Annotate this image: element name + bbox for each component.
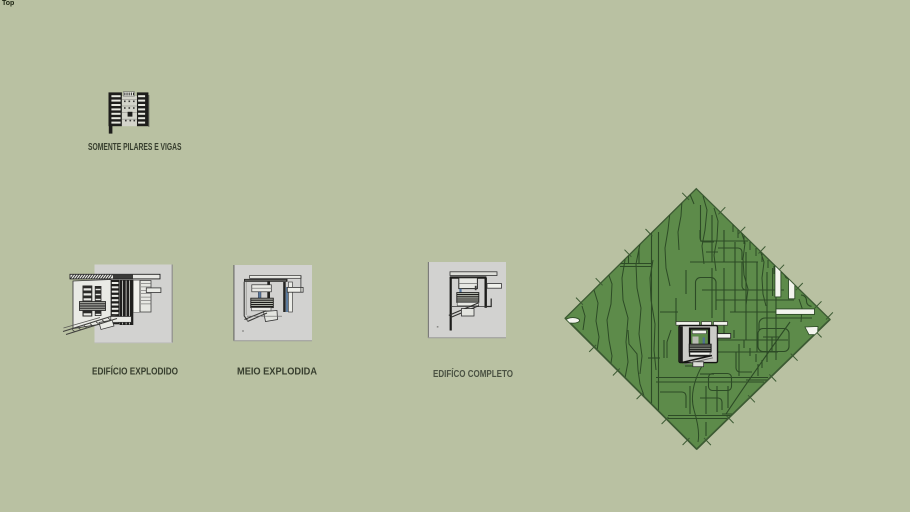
svg-text:MEIO EXPLODIDA: MEIO EXPLODIDA: [237, 365, 317, 377]
svg-text:SOMENTE PILARES E VIGAS: SOMENTE PILARES E VIGAS: [88, 142, 182, 153]
svg-text:EDIFÍCO COMPLETO: EDIFÍCO COMPLETO: [433, 367, 513, 380]
svg-text:EDIFÍCIO EXPLODIDO: EDIFÍCIO EXPLODIDO: [92, 365, 178, 378]
